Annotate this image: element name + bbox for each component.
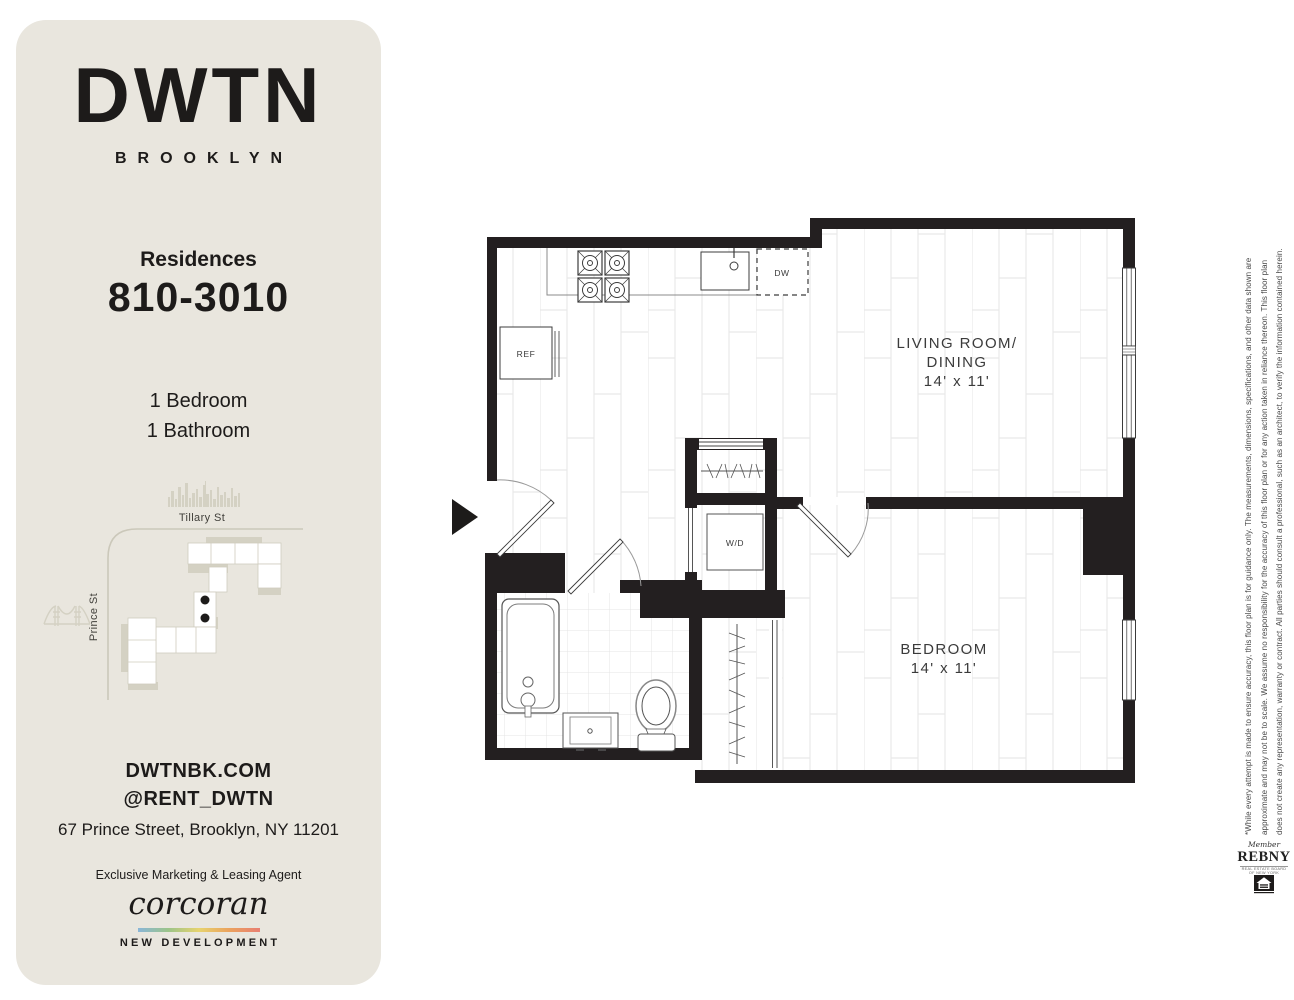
site-map: Tillary St Prince St <box>16 460 381 730</box>
bedroom-dimensions: 14' x 11' <box>911 660 977 677</box>
corcoran-logo: corcoran <box>16 886 381 922</box>
unit-range: 810-3010 <box>16 274 381 321</box>
residences-label: Residences <box>16 248 381 272</box>
street-label-tillary: Tillary St <box>179 512 225 524</box>
refrigerator-label: REF <box>517 349 536 359</box>
disclaimer-line: *While every attempt is made to ensure a… <box>1241 117 1257 835</box>
disclaimer-line: does not create any representation, warr… <box>1272 117 1288 835</box>
agent-label: Exclusive Marketing & Leasing Agent <box>16 868 381 882</box>
rebny-member-label: Member <box>1234 841 1294 849</box>
bathroom-count: 1 Bathroom <box>16 416 381 446</box>
unit-features: 1 Bedroom 1 Bathroom <box>16 386 381 446</box>
rebny-logo: Member REBNY REAL ESTATE BOARD OF NEW YO… <box>1234 841 1294 876</box>
washer-dryer-label: W/D <box>726 538 744 548</box>
toilet-icon <box>636 680 676 751</box>
living-room-dimensions: 14' x 11' <box>924 373 990 390</box>
brand-logo: DWTN <box>16 56 381 134</box>
entry-arrow-icon <box>452 499 478 535</box>
skyline-icon <box>168 481 240 507</box>
bedroom-label: BEDROOM <box>900 641 987 658</box>
disclaimer-line: approximate and may not be to scale. We … <box>1257 117 1273 835</box>
dining-label: DINING <box>927 354 988 371</box>
bathtub-icon <box>502 599 559 717</box>
info-sidebar: DWTN BROOKLYN Residences 810-3010 1 Bedr… <box>16 20 381 985</box>
website-link: DWTNBK.COM <box>16 760 381 783</box>
vanity-sink-icon <box>563 713 618 750</box>
bridge-icon <box>44 606 90 626</box>
unit-location-dot <box>201 596 210 605</box>
building-footprint <box>121 537 281 690</box>
living-room-label: LIVING ROOM/ <box>897 335 1018 352</box>
unit-location-dot <box>201 614 210 623</box>
building-address: 67 Prince Street, Brooklyn, NY 11201 <box>16 820 381 840</box>
rebny-name: REBNY <box>1234 850 1294 865</box>
agent-tagline: NEW DEVELOPMENT <box>16 937 381 949</box>
instagram-handle: @RENT_DWTN <box>16 788 381 811</box>
street-label-prince: Prince St <box>88 593 100 641</box>
floor-plan: LIVING ROOM/ DINING 14' x 11' BEDROOM 14… <box>450 195 1150 807</box>
equal-housing-icon <box>1253 874 1275 894</box>
bedroom-count: 1 Bedroom <box>16 386 381 416</box>
brand-location: BROOKLYN <box>16 150 381 168</box>
disclaimer-text: *While every attempt is made to ensure a… <box>1241 117 1288 835</box>
dishwasher-label: DW <box>774 268 789 278</box>
corcoran-gradient-bar <box>138 928 260 932</box>
